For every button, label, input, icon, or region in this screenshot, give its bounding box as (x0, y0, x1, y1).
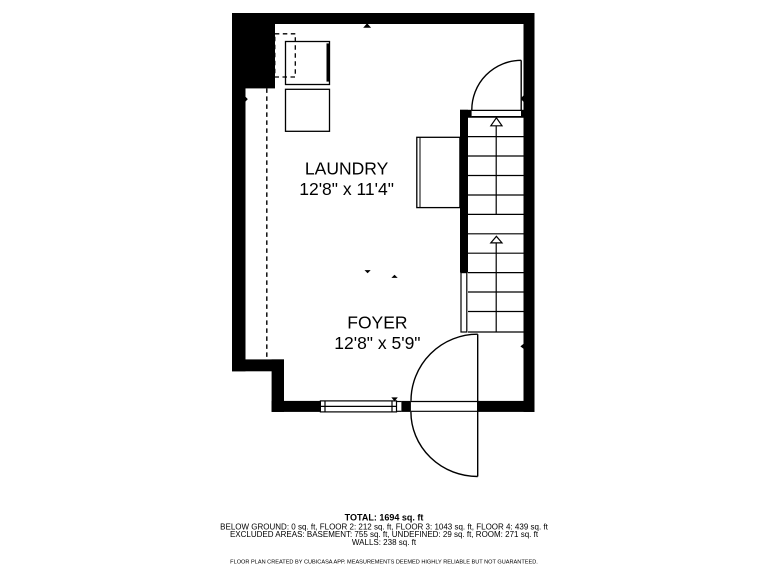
svg-text:12'8" x 5'9": 12'8" x 5'9" (334, 333, 420, 353)
svg-text:TOTAL: 1694 sq. ft: TOTAL: 1694 sq. ft (345, 512, 424, 522)
svg-text:FOYER: FOYER (347, 313, 407, 333)
svg-text:FLOOR PLAN CREATED BY CUBICASA: FLOOR PLAN CREATED BY CUBICASA APP. MEAS… (230, 560, 538, 566)
svg-text:WALLS: 238 sq. ft: WALLS: 238 sq. ft (352, 538, 417, 547)
svg-text:12'8" x 11'4": 12'8" x 11'4" (299, 179, 394, 199)
svg-text:LAUNDRY: LAUNDRY (305, 158, 389, 178)
